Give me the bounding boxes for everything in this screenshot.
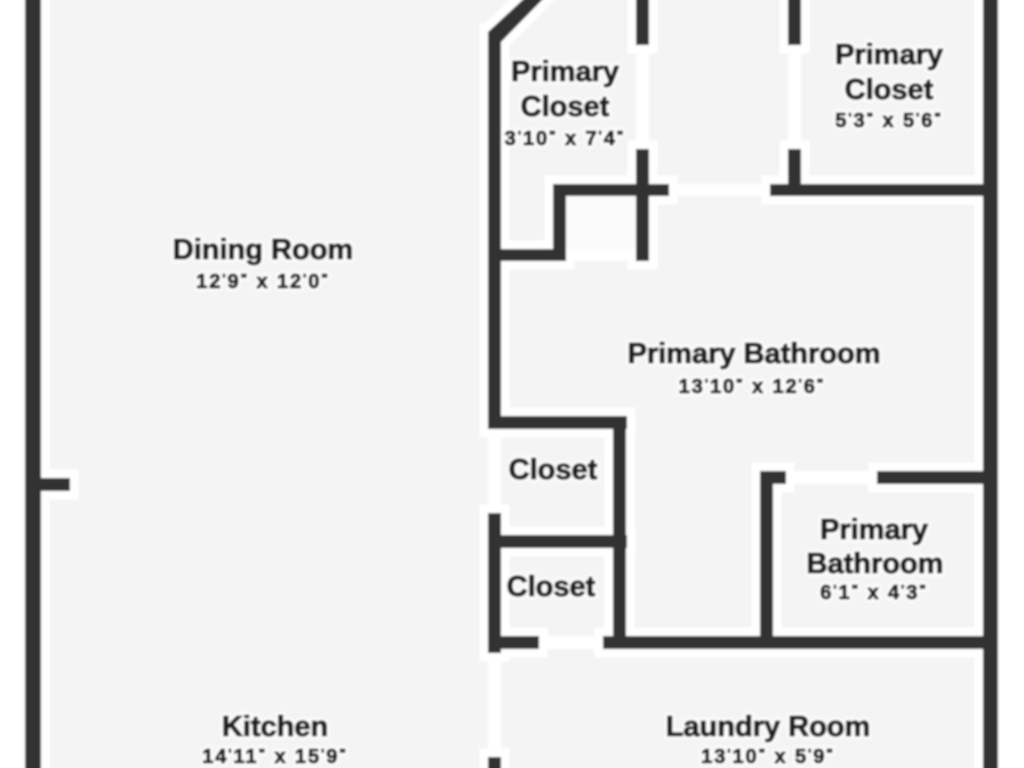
svg-text:Closet: Closet: [507, 571, 596, 603]
svg-text:Primary Bathroom: Primary Bathroom: [627, 338, 880, 370]
svg-text:Closet: Closet: [845, 74, 934, 106]
svg-text:Primary: Primary: [835, 39, 943, 71]
svg-text:13'​10"​ x 5'​9"​: 13'​10"​ x 5'​9"​: [701, 746, 835, 768]
svg-text:Closet: Closet: [509, 454, 598, 486]
svg-text:14'​11"​ x 15'​9"​: 14'​11"​ x 15'​9"​: [202, 746, 348, 768]
svg-text:Dining Room: Dining Room: [173, 234, 353, 266]
svg-text:Kitchen: Kitchen: [222, 711, 328, 743]
svg-text:Closet: Closet: [521, 91, 610, 123]
svg-text:12'​9"​ x 12'​0"​: 12'​9"​ x 12'​0"​: [196, 271, 330, 293]
svg-text:Bathroom: Bathroom: [807, 548, 944, 580]
svg-text:Laundry Room: Laundry Room: [666, 711, 871, 743]
svg-text:Primary: Primary: [511, 56, 619, 88]
svg-text:3'​10"​ x 7'​4"​: 3'​10"​ x 7'​4"​: [505, 128, 626, 150]
svg-text:13'​10"​ x 12'​6"​: 13'​10"​ x 12'​6"​: [679, 376, 826, 398]
svg-text:Primary: Primary: [820, 514, 928, 546]
